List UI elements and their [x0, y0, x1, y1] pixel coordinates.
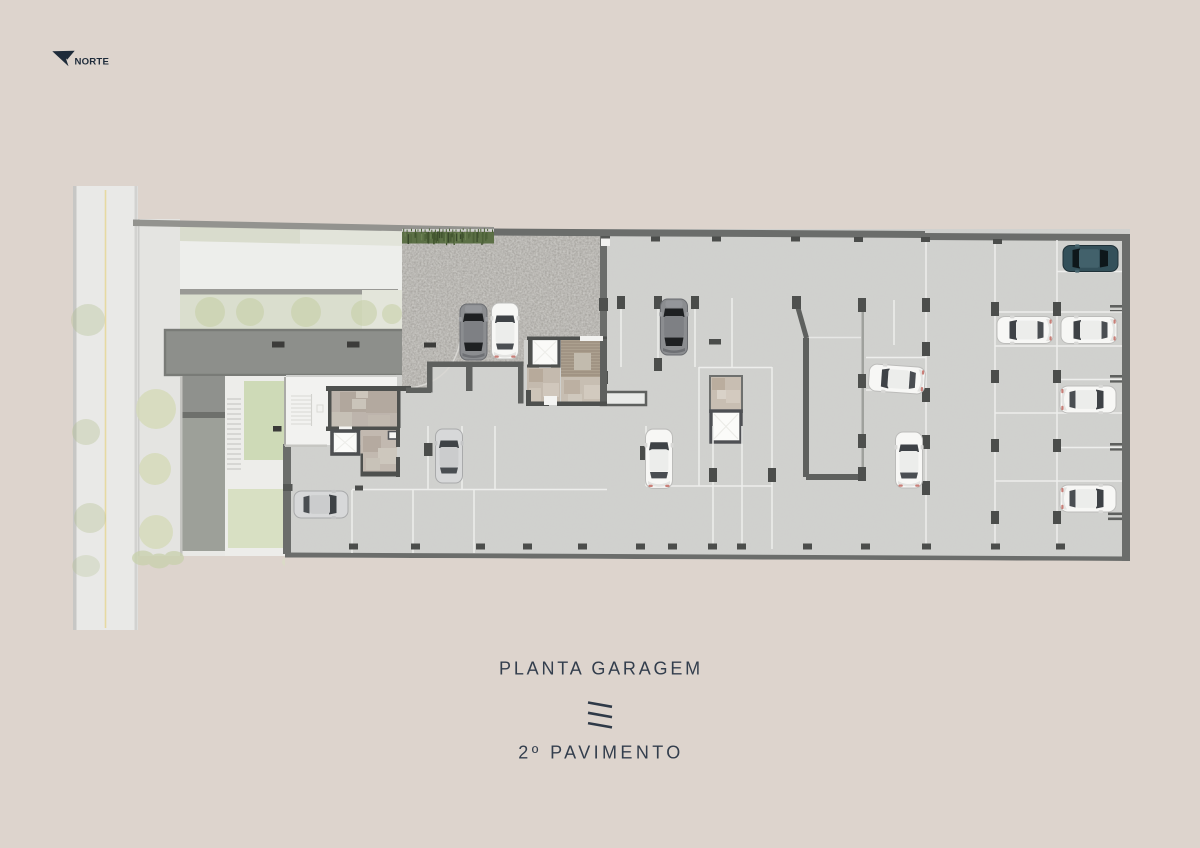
svg-text:PLANTA GARAGEM: PLANTA GARAGEM — [499, 659, 703, 679]
svg-text:NORTE: NORTE — [75, 56, 110, 67]
svg-text:2º PAVIMENTO: 2º PAVIMENTO — [518, 743, 683, 763]
